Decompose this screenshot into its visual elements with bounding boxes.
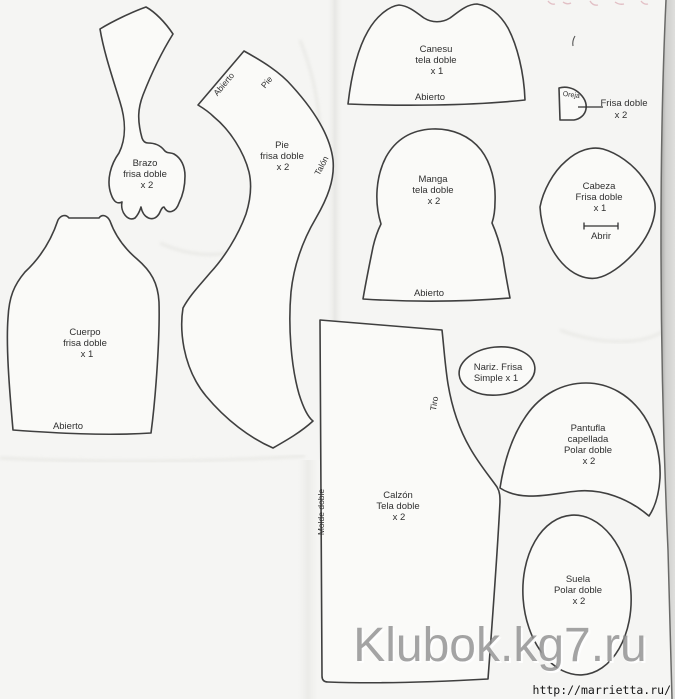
pie-material: frisa doble	[260, 151, 304, 162]
suela-material: Polar doble	[554, 585, 602, 596]
canesu-title: Canesu	[420, 44, 453, 55]
suela-title: Suela	[566, 574, 591, 585]
cuerpo-title: Cuerpo	[69, 327, 100, 338]
pie-title: Pie	[275, 140, 289, 151]
cabeza-title: Cabeza	[583, 181, 616, 192]
cuerpo-edge-bottom-label: Abierto	[53, 421, 83, 432]
manga-quantity: x 2	[428, 196, 441, 207]
nariz-title: Nariz. Frisa	[474, 362, 523, 373]
pattern-sheet-canvas: Brazo frisa doble x 2 Abierto Pie Talón …	[0, 0, 675, 699]
brazo-material: frisa doble	[123, 169, 167, 180]
calzon-material: Tela doble	[376, 501, 419, 512]
pantufla-title: Pantufla	[571, 423, 607, 434]
watermark-text: Klubok.kg7.ru	[353, 619, 647, 672]
cabeza-opening-label: Abrir	[591, 231, 611, 242]
suela-quantity: x 2	[573, 596, 586, 607]
cabeza-quantity: x 1	[594, 203, 607, 214]
cuerpo-material: frisa doble	[63, 338, 107, 349]
manga-edge-bottom-label: Abierto	[414, 288, 444, 299]
manga-title: Manga	[418, 174, 448, 185]
nariz-quantity: Simple x 1	[474, 373, 518, 384]
pantufla-material: Polar doble	[564, 445, 612, 456]
cabeza-material: Frisa doble	[576, 192, 623, 203]
calzon-edge-fold-label: Molde doble	[316, 489, 326, 536]
scanned-pattern-sheet: Brazo frisa doble x 2 Abierto Pie Talón …	[0, 0, 675, 699]
canesu-material: tela doble	[415, 55, 456, 66]
pantufla-quantity: x 2	[583, 456, 596, 467]
pie-quantity: x 2	[277, 162, 290, 173]
oreja-quantity: x 2	[615, 110, 628, 121]
page-seam-shading-lower	[298, 460, 318, 699]
brazo-quantity: x 2	[141, 180, 154, 191]
pantufla-subtitle: capellada	[568, 434, 609, 445]
source-url-text: http://marrietta.ru/	[533, 683, 672, 697]
calzon-quantity: x 2	[393, 512, 406, 523]
manga-material: tela doble	[412, 185, 453, 196]
brazo-title: Brazo	[133, 158, 158, 169]
oreja-material: Frisa doble	[601, 98, 648, 109]
canesu-quantity: x 1	[431, 66, 444, 77]
cuerpo-quantity: x 1	[81, 349, 94, 360]
calzon-title: Calzón	[383, 490, 413, 501]
canesu-edge-bottom-label: Abierto	[415, 92, 445, 103]
